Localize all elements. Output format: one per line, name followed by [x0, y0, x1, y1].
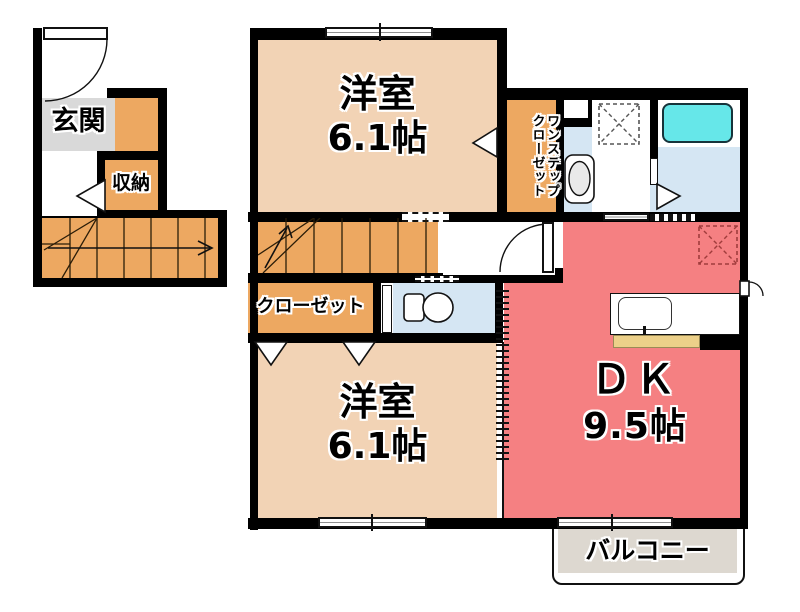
closet-label: クローゼット [248, 297, 373, 317]
dk-size: 9.5帖 [583, 406, 687, 447]
room-upper-label: 洋室 6.1帖 [258, 73, 497, 159]
stairs-lower [42, 218, 218, 278]
bathtub [662, 103, 733, 143]
closet-door-marker [340, 338, 379, 369]
wall-vanity-bar [564, 118, 592, 127]
storage-label: 収納 [99, 173, 163, 194]
washing-machine-space [597, 102, 641, 146]
opening-washroom-dk [650, 214, 695, 221]
wall-counter-end [700, 335, 740, 350]
room-upper-name: 洋室 [339, 72, 415, 116]
wall-under-entrance [97, 151, 167, 160]
vanity-cubby [564, 100, 588, 118]
entrance-shoe-cabinet [115, 98, 158, 151]
toilet [400, 288, 460, 328]
balcony-label: バルコニー [558, 537, 737, 565]
room-lower-size: 6.1帖 [328, 426, 428, 467]
window-dk [557, 517, 673, 528]
wall-vanity-edge [588, 100, 592, 118]
one-step-closet-line2: クローゼット [529, 100, 544, 212]
wall-washroom-bath [650, 100, 658, 158]
accordion-partition [496, 290, 509, 464]
room-lower-label: 洋室 6.1帖 [258, 381, 497, 467]
toilet-door-leaf [382, 285, 392, 333]
entrance-door [40, 24, 115, 106]
dk-label: ＤＫ 9.5帖 [545, 358, 725, 448]
wall-stairs-lower-right [218, 210, 227, 287]
stairs-upper [258, 218, 438, 273]
dk-door [495, 218, 560, 278]
wall-entrance-bottom [33, 278, 227, 287]
dk-name: ＤＫ [591, 357, 679, 403]
wall-main-right [740, 88, 748, 529]
floor-plan: 玄関 収納 洋室 6.1帖 ワンステップ クローゼット クローゼット 洋室 6.… [0, 0, 800, 612]
kitchen-base-strip [613, 335, 700, 348]
wall-bath-top [497, 88, 748, 100]
one-step-closet-line1: ワンステップ [543, 100, 558, 212]
window-washroom [603, 213, 649, 221]
washbasin [562, 152, 598, 206]
window-tick [611, 514, 613, 531]
entrance-label: 玄関 [42, 107, 115, 137]
opening-toilet [415, 276, 459, 282]
room-upper-size: 6.1帖 [328, 118, 428, 159]
window-tick [371, 514, 373, 531]
bath-door-marker [654, 180, 684, 213]
room-lower-name: 洋室 [339, 380, 415, 424]
refrigerator-space [697, 224, 739, 266]
wall-stairs-lower-top [97, 210, 227, 218]
one-step-closet-label: ワンステップ クローゼット [504, 100, 558, 212]
window-tick [379, 23, 381, 41]
kitchen-side-door [738, 278, 768, 300]
closet-door-marker [252, 338, 291, 369]
